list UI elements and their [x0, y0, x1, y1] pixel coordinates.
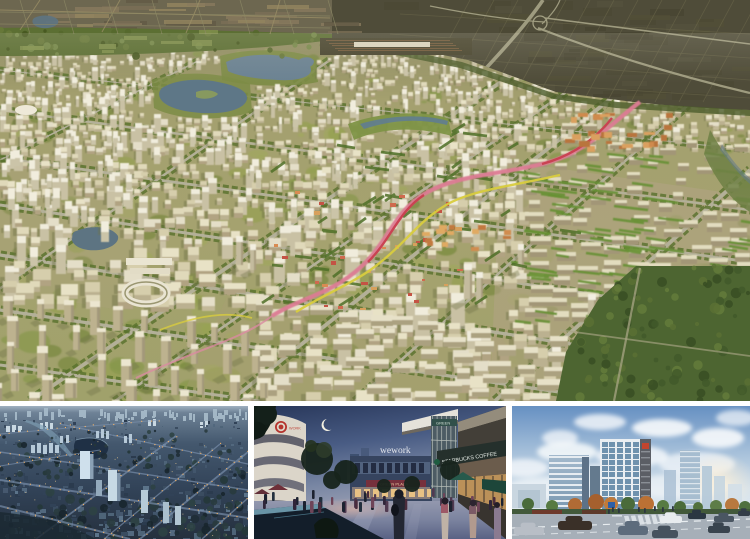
svg-text:WORK: WORK: [289, 427, 301, 431]
svg-text:wework: wework: [380, 446, 411, 456]
svg-text:GREEN: GREEN: [436, 421, 450, 426]
